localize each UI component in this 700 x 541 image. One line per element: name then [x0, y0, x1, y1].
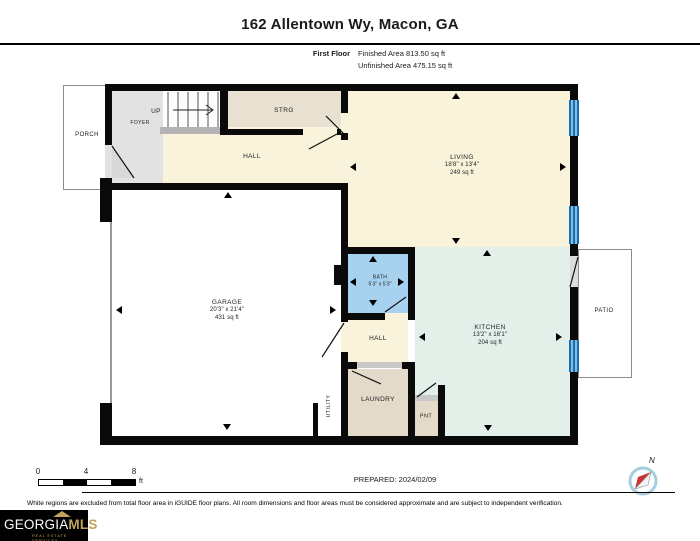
bath-dims: 5'3" x 5'3"	[369, 281, 392, 288]
dim-arrow-living-top	[452, 93, 460, 99]
page-title: 162 Allentown Wy, Macon, GA	[0, 16, 700, 33]
dim-arrow-bath-top	[369, 256, 377, 262]
dim-arrow-living-bottom	[452, 238, 460, 244]
wall-garage-top	[105, 183, 348, 190]
dim-arrow-bath-right	[398, 278, 404, 286]
kitchen-name: KITCHEN	[473, 324, 507, 332]
wall-stub-bath	[334, 265, 341, 285]
garage-area: 431 sq ft	[210, 315, 244, 323]
scale-tick-4: 4	[84, 467, 88, 476]
opening-strg-hall	[303, 129, 337, 135]
scale-tick-0: 0	[36, 467, 40, 476]
logo-wordmark: GEORGIAMLS	[4, 517, 98, 532]
wall-bath-bottom	[341, 313, 385, 320]
floor-plan-page: 162 Allentown Wy, Macon, GA First Floor …	[0, 0, 700, 541]
dim-arrow-living-left	[350, 163, 356, 171]
hall-upper-label: HALL	[243, 153, 261, 161]
dim-arrow-garage-right	[330, 306, 336, 314]
window-living-2	[569, 206, 579, 244]
porch-label: PORCH	[75, 132, 99, 140]
wall-strg-bottom-nub	[337, 129, 341, 135]
post-left-bottom	[100, 403, 112, 445]
prepared-date: PREPARED: 2024/02/09	[330, 475, 460, 484]
finished-area-text: Finished Area 813.50 sq ft	[358, 49, 445, 58]
georgia-mls-logo: GEORGIAMLS REAL ESTATE SERVICES	[0, 510, 88, 541]
opening-hall-living	[341, 140, 348, 183]
living-dims: 18'8" x 13'4"	[445, 162, 479, 170]
strg-label: STRG	[274, 107, 294, 115]
wall-hall-living-b	[341, 133, 348, 140]
wall-right-1	[570, 91, 578, 100]
logo-tagline: REAL ESTATE SERVICES	[32, 533, 88, 541]
garage-door-line	[110, 222, 112, 403]
scale-unit: ft	[139, 478, 143, 485]
opening-patio-door	[570, 256, 578, 287]
laundry-label: LAUNDRY	[361, 396, 395, 404]
wall-right-4	[570, 287, 578, 340]
compass-needle-white	[635, 472, 651, 489]
window-kitchen	[569, 340, 579, 372]
compass-north-label: N	[649, 456, 655, 465]
scale-bar	[38, 479, 136, 486]
opening-front-door	[105, 145, 112, 178]
wall-laundry-right	[408, 362, 415, 436]
dim-arrow-kitchen-right	[556, 333, 562, 341]
dim-arrow-bath-left	[350, 278, 356, 286]
dim-arrow-garage-top	[224, 192, 232, 198]
laundry-threshold	[357, 362, 402, 368]
wall-pnt-right	[438, 385, 445, 436]
compass-needle-red	[635, 472, 651, 489]
logo-mls: MLS	[68, 517, 97, 532]
dim-arrow-living-right	[560, 163, 566, 171]
garage-name: GARAGE	[210, 299, 244, 307]
garage-dims: 20'3" x 21'4"	[210, 307, 244, 315]
footer-divider	[82, 492, 675, 493]
dim-arrow-bath-bottom	[369, 300, 377, 306]
kitchen-area: 204 sq ft	[473, 340, 507, 348]
utility-label: UTILITY	[326, 395, 333, 418]
foyer-label: FOYER	[130, 120, 149, 127]
scale-tick-8: 8	[132, 467, 136, 476]
room-foyer	[112, 91, 168, 183]
garage-label: GARAGE 20'3" x 21'4" 431 sq ft	[210, 299, 244, 323]
compass-ring	[630, 468, 656, 494]
bath-label: BATH 5'3" x 5'3"	[369, 275, 392, 288]
wall-hall-living-a	[341, 84, 348, 113]
living-area: 249 sq ft	[445, 170, 479, 178]
title-divider	[0, 43, 700, 45]
compass-icon	[630, 468, 656, 494]
kitchen-label: KITCHEN 13'2" x 16'1" 204 sq ft	[473, 324, 507, 348]
logo-georgia: GEORGIA	[4, 517, 68, 532]
dim-arrow-kitchen-bottom	[484, 425, 492, 431]
dim-arrow-garage-left	[116, 306, 122, 314]
wall-utility-stub	[313, 403, 318, 436]
floor-label: First Floor	[240, 49, 350, 58]
stairs-area	[163, 91, 220, 127]
hall-lower-label: HALL	[369, 335, 387, 343]
kitchen-dims: 13'2" x 16'1"	[473, 332, 507, 340]
pnt-label: PNT	[420, 413, 432, 420]
opening-garage-hall	[341, 322, 348, 352]
wall-strg-bottom	[228, 129, 303, 135]
opening-bath-hall	[385, 313, 408, 320]
stair-landing	[160, 127, 220, 134]
stairs-up-label: UP	[151, 108, 161, 116]
opening-strg-living	[341, 113, 348, 133]
wall-right-2	[570, 136, 578, 206]
wall-stairs-strg	[220, 84, 228, 135]
dim-arrow-kitchen-top	[483, 250, 491, 256]
dim-arrow-garage-bottom	[223, 424, 231, 430]
living-name: LIVING	[445, 154, 479, 162]
dim-arrow-kitchen-left	[419, 333, 425, 341]
wall-left-upper	[105, 84, 112, 145]
disclaimer-text: White regions are excluded from total fl…	[27, 500, 563, 507]
wall-right-3	[570, 244, 578, 256]
wall-bath-right	[408, 247, 415, 320]
wall-right-5	[570, 372, 578, 445]
wall-hall-laundry-l	[341, 362, 357, 369]
unfinished-area-text: Unfinished Area 475.15 sq ft	[358, 61, 452, 70]
pantry-threshold	[415, 395, 438, 401]
living-label: LIVING 18'8" x 13'4" 249 sq ft	[445, 154, 479, 178]
wall-bath-top	[341, 247, 415, 254]
window-living-1	[569, 100, 579, 136]
patio-label: PATIO	[594, 308, 613, 316]
